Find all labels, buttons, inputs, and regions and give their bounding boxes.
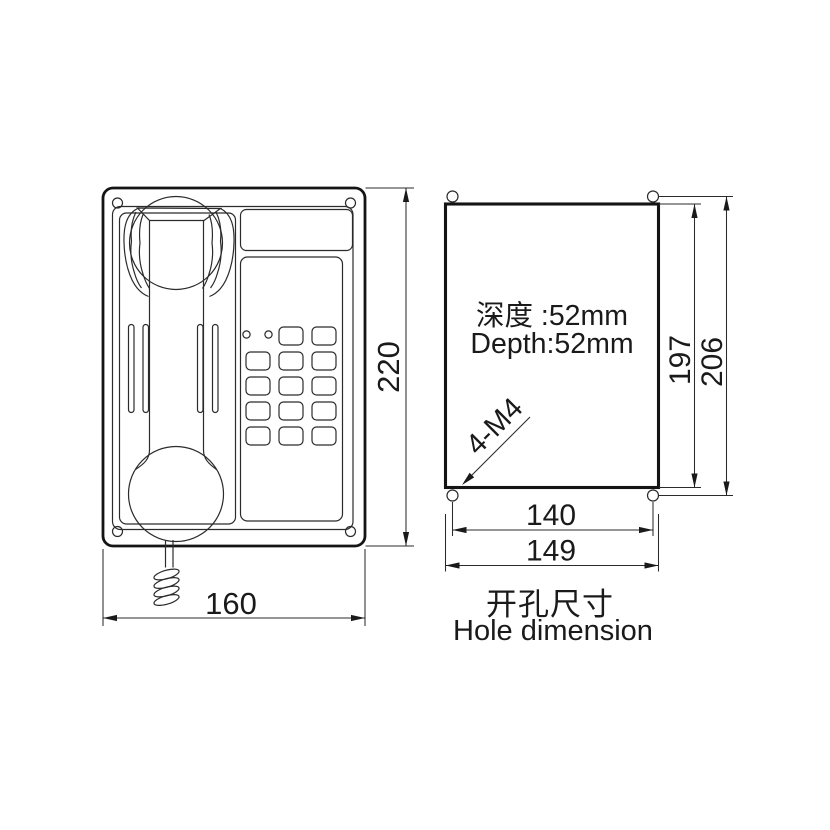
- screw-hole: [447, 490, 458, 501]
- screw-spec-label: 4-M4: [460, 392, 529, 461]
- speaker-slot: [129, 325, 135, 413]
- dimension-value-inner-height: 197: [664, 335, 697, 385]
- keypad-button: [279, 327, 303, 345]
- phone-front-view: 220 160: [103, 188, 414, 626]
- keypad-button: [279, 427, 303, 445]
- cord-coil-loop: [153, 584, 180, 599]
- cradle-hook-left: [124, 209, 149, 297]
- screw-hole: [648, 490, 659, 501]
- hole-cutout-view: 深度 :52mm Depth:52mm 4-M4 197 206: [446, 191, 734, 647]
- screw-spec-callout: 4-M4: [460, 392, 530, 485]
- keypad-button: [312, 427, 336, 445]
- screw-hole: [648, 191, 659, 202]
- cord-coil-loop: [153, 567, 180, 582]
- handset-cord: [153, 540, 180, 608]
- drawing-canvas: 220 160 深度 :52mm Depth:52mm 4-M4: [0, 0, 830, 830]
- speaker-slot: [213, 325, 219, 413]
- keypad-button: [246, 427, 270, 445]
- dimension-value-height: 220: [371, 341, 406, 393]
- keypad-button: [246, 402, 270, 420]
- arrowhead-left: [103, 615, 117, 621]
- screw-hole: [346, 198, 356, 208]
- keypad-button: [312, 352, 336, 370]
- dimension-width-140: 140: [453, 499, 654, 536]
- speaker-slot: [143, 325, 149, 413]
- dimension-value-inner-width: 140: [526, 499, 576, 532]
- screw-hole: [447, 191, 458, 202]
- keypad-button: [246, 352, 270, 370]
- keypad-button: [279, 377, 303, 395]
- dimension-height-220: 220: [366, 188, 415, 546]
- dimension-value-outer-width: 149: [526, 535, 576, 568]
- caption-en: Hole dimension: [453, 615, 653, 647]
- arrowhead-up: [723, 197, 729, 211]
- arrowhead-right: [645, 562, 659, 568]
- dimension-width-160: 160: [103, 549, 365, 626]
- arrowhead-down: [723, 482, 729, 496]
- keypad-panel: [241, 257, 343, 521]
- label-window: [241, 210, 353, 251]
- keypad-button: [312, 327, 336, 345]
- arrowhead-left: [446, 562, 460, 568]
- handset-mouthpiece: [129, 447, 224, 542]
- arrowhead-up: [691, 204, 697, 218]
- keypad-buttons: [246, 327, 336, 445]
- dimension-height-197: 197: [659, 204, 701, 488]
- dimension-value-outer-height: 206: [696, 337, 729, 387]
- keypad-button: [312, 377, 336, 395]
- indicator-led: [265, 331, 272, 338]
- depth-label-en: Depth:52mm: [470, 328, 633, 360]
- cord-coil-loop: [153, 575, 180, 590]
- technical-drawing: 220 160 深度 :52mm Depth:52mm 4-M4: [0, 0, 830, 830]
- keypad-button: [279, 402, 303, 420]
- keypad-leds: [243, 331, 272, 338]
- keypad-button: [246, 377, 270, 395]
- arrowhead-down: [691, 474, 697, 488]
- keypad-button: [312, 402, 336, 420]
- cradle-hook-left-detail: [139, 215, 149, 289]
- speaker-slots: [129, 325, 219, 413]
- arrowhead-left: [453, 527, 467, 533]
- arrowhead-up: [403, 188, 409, 202]
- screw-hole: [113, 527, 123, 537]
- speaker-slot: [198, 325, 204, 413]
- dimension-value-width: 160: [205, 586, 257, 621]
- arrowhead-right: [639, 527, 653, 533]
- arrowhead-down: [403, 532, 409, 546]
- indicator-led: [243, 331, 250, 338]
- cord-coil-loop: [153, 592, 180, 607]
- handset-handle-right-edge: [204, 221, 217, 470]
- arrowhead-right: [351, 615, 365, 621]
- keypad-button: [279, 352, 303, 370]
